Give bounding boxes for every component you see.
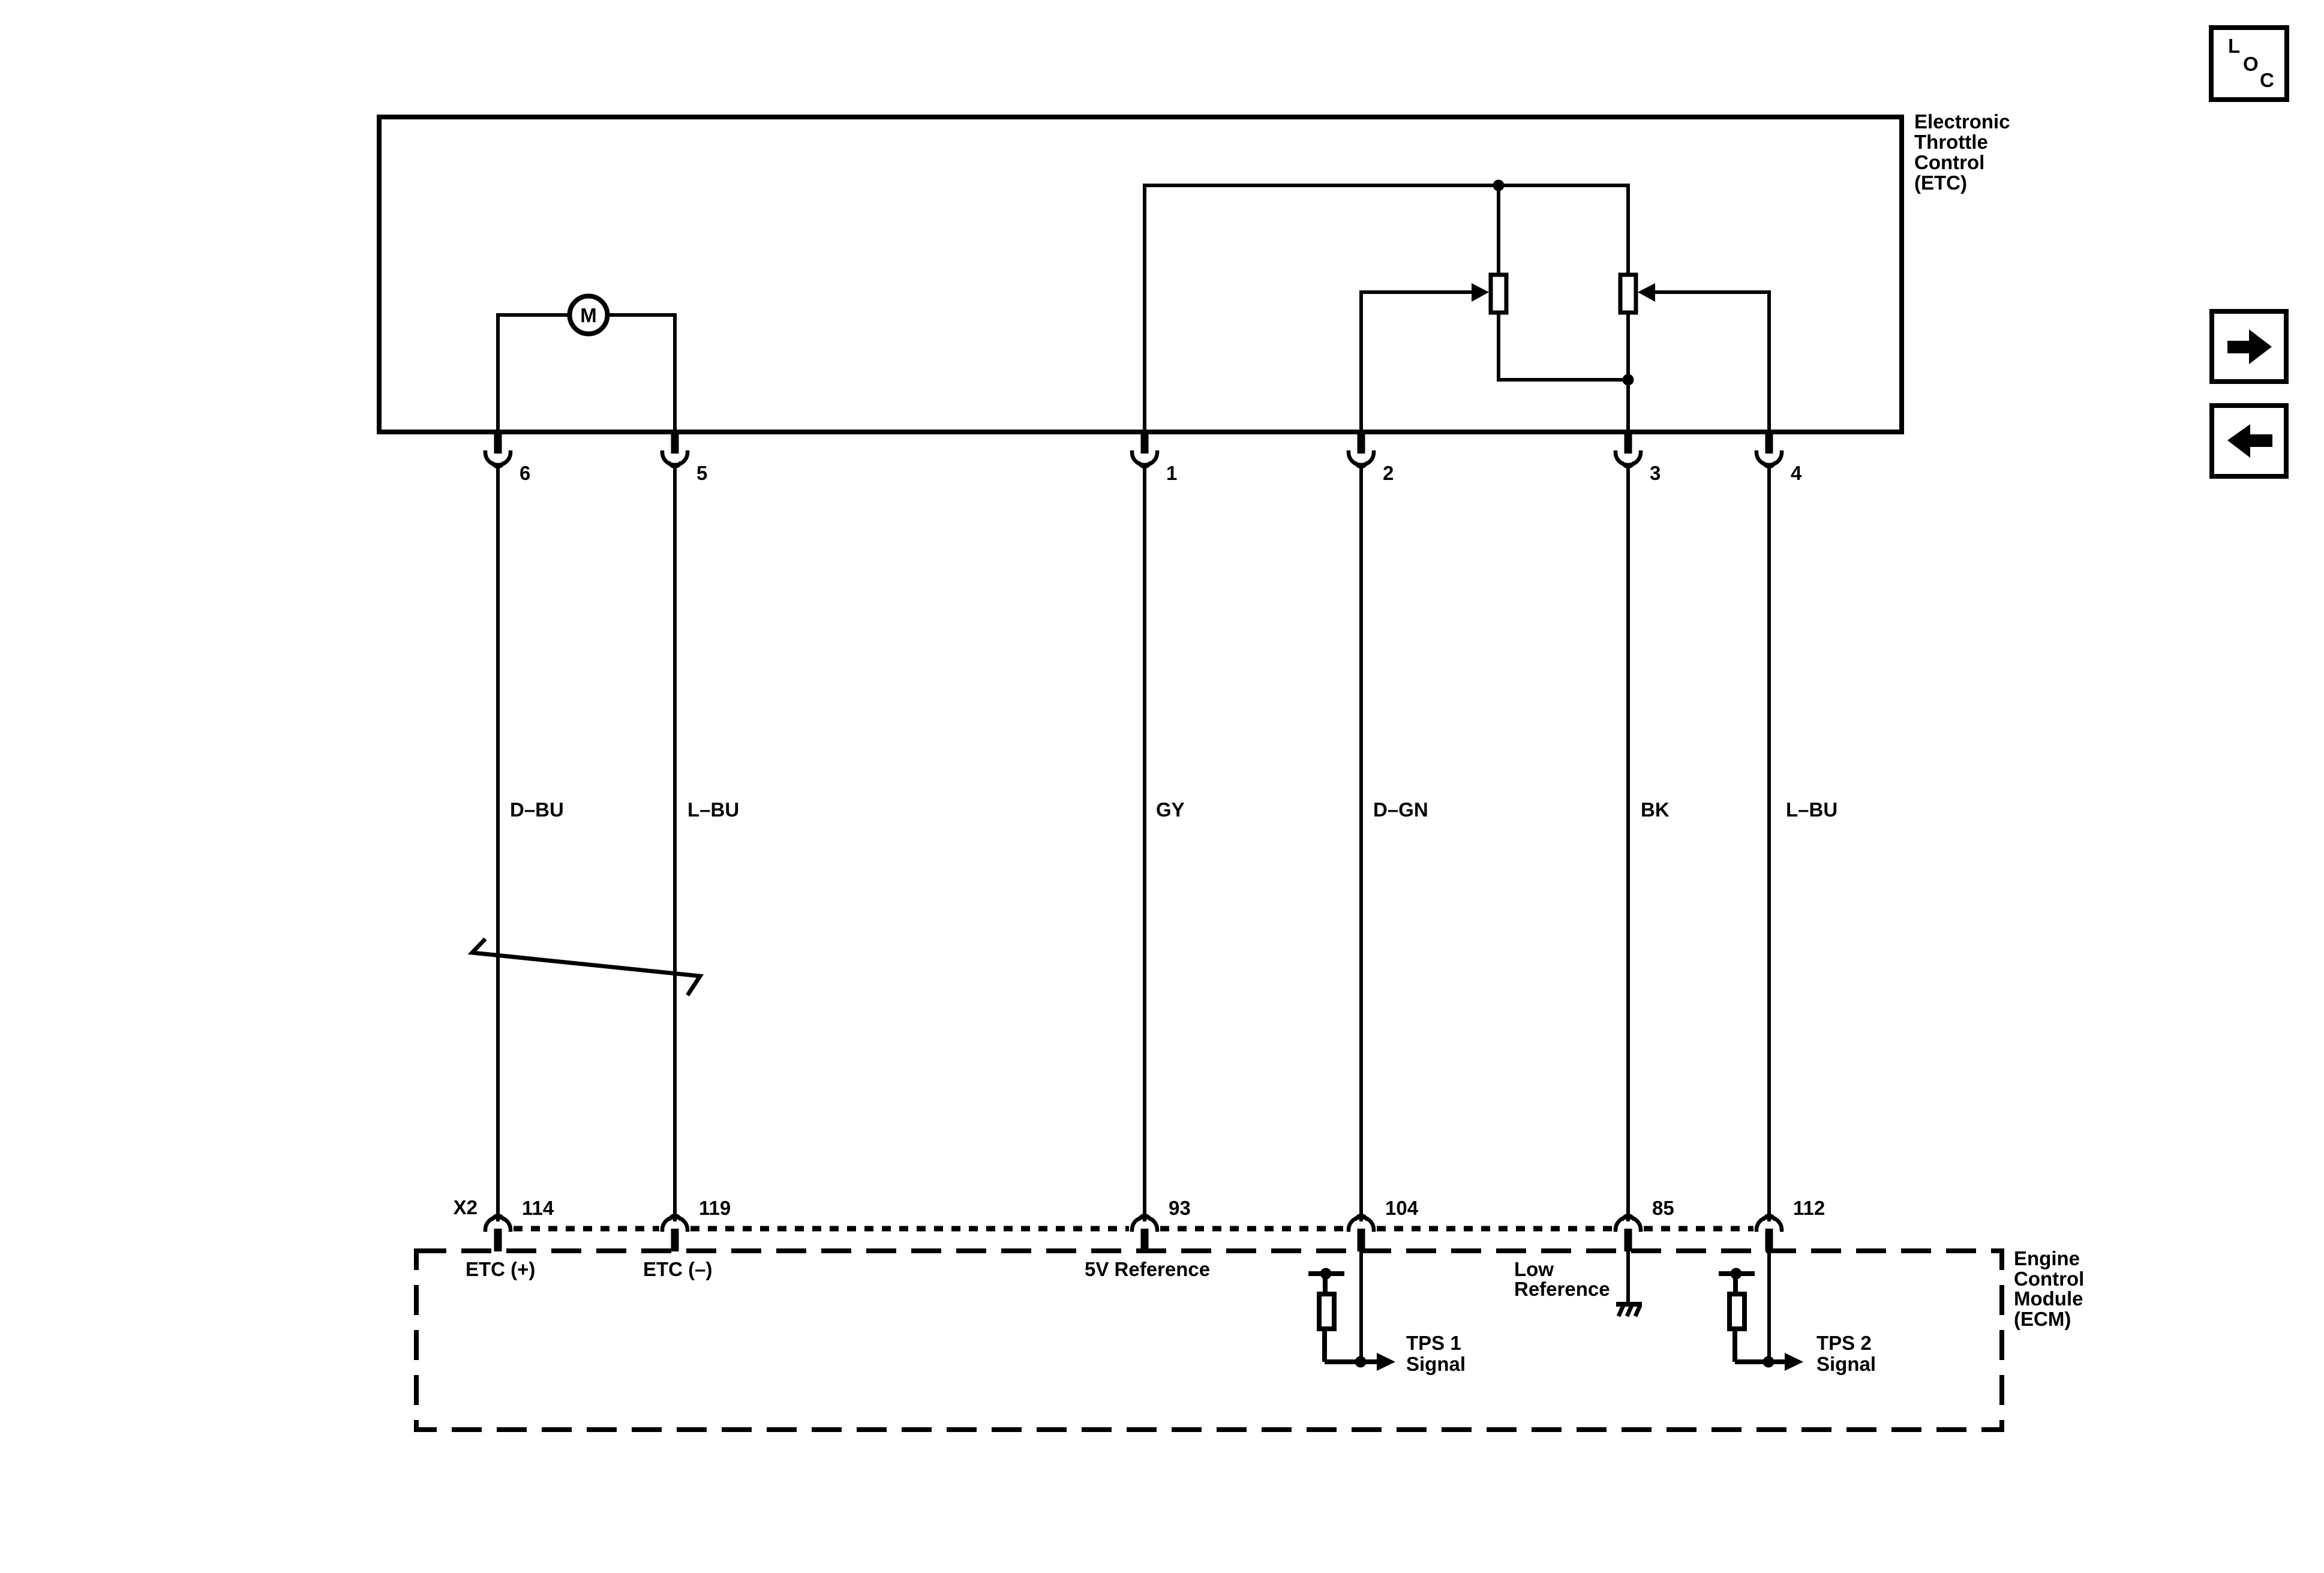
svg-text:6: 6 — [520, 462, 530, 484]
svg-text:ETC (–): ETC (–) — [643, 1258, 713, 1280]
svg-text:112: 112 — [1793, 1197, 1825, 1219]
svg-text:ETC (+): ETC (+) — [466, 1258, 535, 1280]
svg-text:C: C — [2260, 69, 2274, 91]
svg-text:93: 93 — [1169, 1197, 1191, 1219]
svg-text:Signal: Signal — [1406, 1353, 1466, 1375]
svg-text:D–BU: D–BU — [510, 798, 564, 821]
svg-text:Engine: Engine — [2014, 1247, 2080, 1269]
svg-text:Low: Low — [1514, 1258, 1554, 1280]
svg-text:X2: X2 — [454, 1196, 478, 1218]
svg-text:85: 85 — [1652, 1197, 1674, 1219]
svg-text:119: 119 — [699, 1197, 731, 1219]
svg-text:Reference: Reference — [1514, 1278, 1610, 1300]
svg-text:Module: Module — [2014, 1287, 2083, 1310]
svg-text:4: 4 — [1791, 462, 1802, 484]
svg-text:3: 3 — [1650, 462, 1661, 484]
svg-text:(ECM): (ECM) — [2014, 1308, 2071, 1330]
svg-text:Control: Control — [2014, 1268, 2084, 1290]
svg-text:BK: BK — [1641, 798, 1670, 821]
svg-text:Throttle: Throttle — [1914, 131, 1988, 153]
svg-text:L: L — [2228, 35, 2240, 57]
svg-text:(ETC): (ETC) — [1914, 172, 1967, 194]
svg-text:L–BU: L–BU — [1786, 798, 1837, 821]
svg-text:1: 1 — [1166, 462, 1177, 484]
svg-text:Control: Control — [1914, 151, 1984, 173]
svg-text:O: O — [2243, 53, 2259, 75]
svg-text:GY: GY — [1156, 798, 1185, 821]
svg-text:L–BU: L–BU — [687, 798, 739, 821]
svg-text:114: 114 — [522, 1197, 554, 1219]
svg-text:D–GN: D–GN — [1373, 798, 1428, 821]
svg-text:5: 5 — [696, 462, 707, 484]
svg-text:Electronic: Electronic — [1914, 110, 2010, 133]
svg-text:104: 104 — [1385, 1197, 1419, 1219]
svg-text:2: 2 — [1383, 462, 1394, 484]
svg-text:5V Reference: 5V Reference — [1085, 1258, 1210, 1280]
svg-text:TPS 2: TPS 2 — [1816, 1332, 1872, 1354]
svg-text:Signal: Signal — [1816, 1353, 1876, 1375]
svg-text:TPS 1: TPS 1 — [1406, 1332, 1461, 1354]
svg-text:M: M — [580, 304, 597, 326]
